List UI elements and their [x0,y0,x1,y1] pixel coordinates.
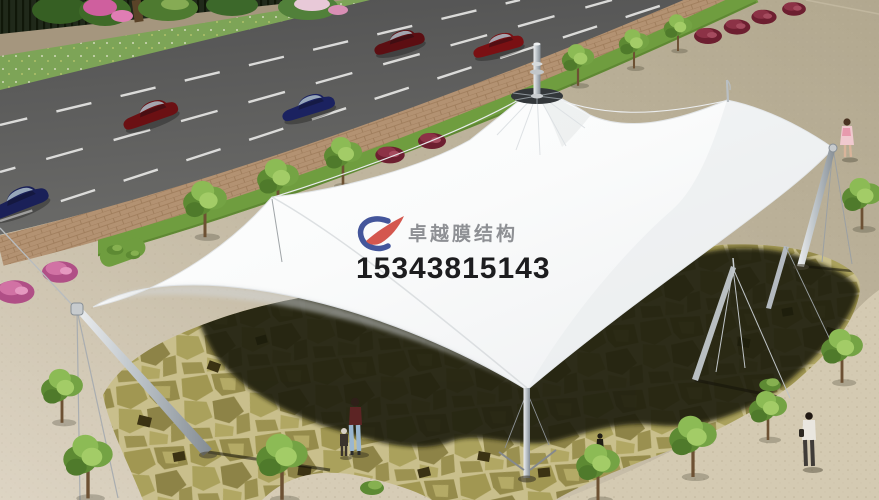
phone-number-text: 15343815143 [356,252,551,285]
company-name-text: 卓越膜结构 [408,222,518,245]
rendering-canvas: 卓越膜结构 15343815143 [0,0,879,500]
